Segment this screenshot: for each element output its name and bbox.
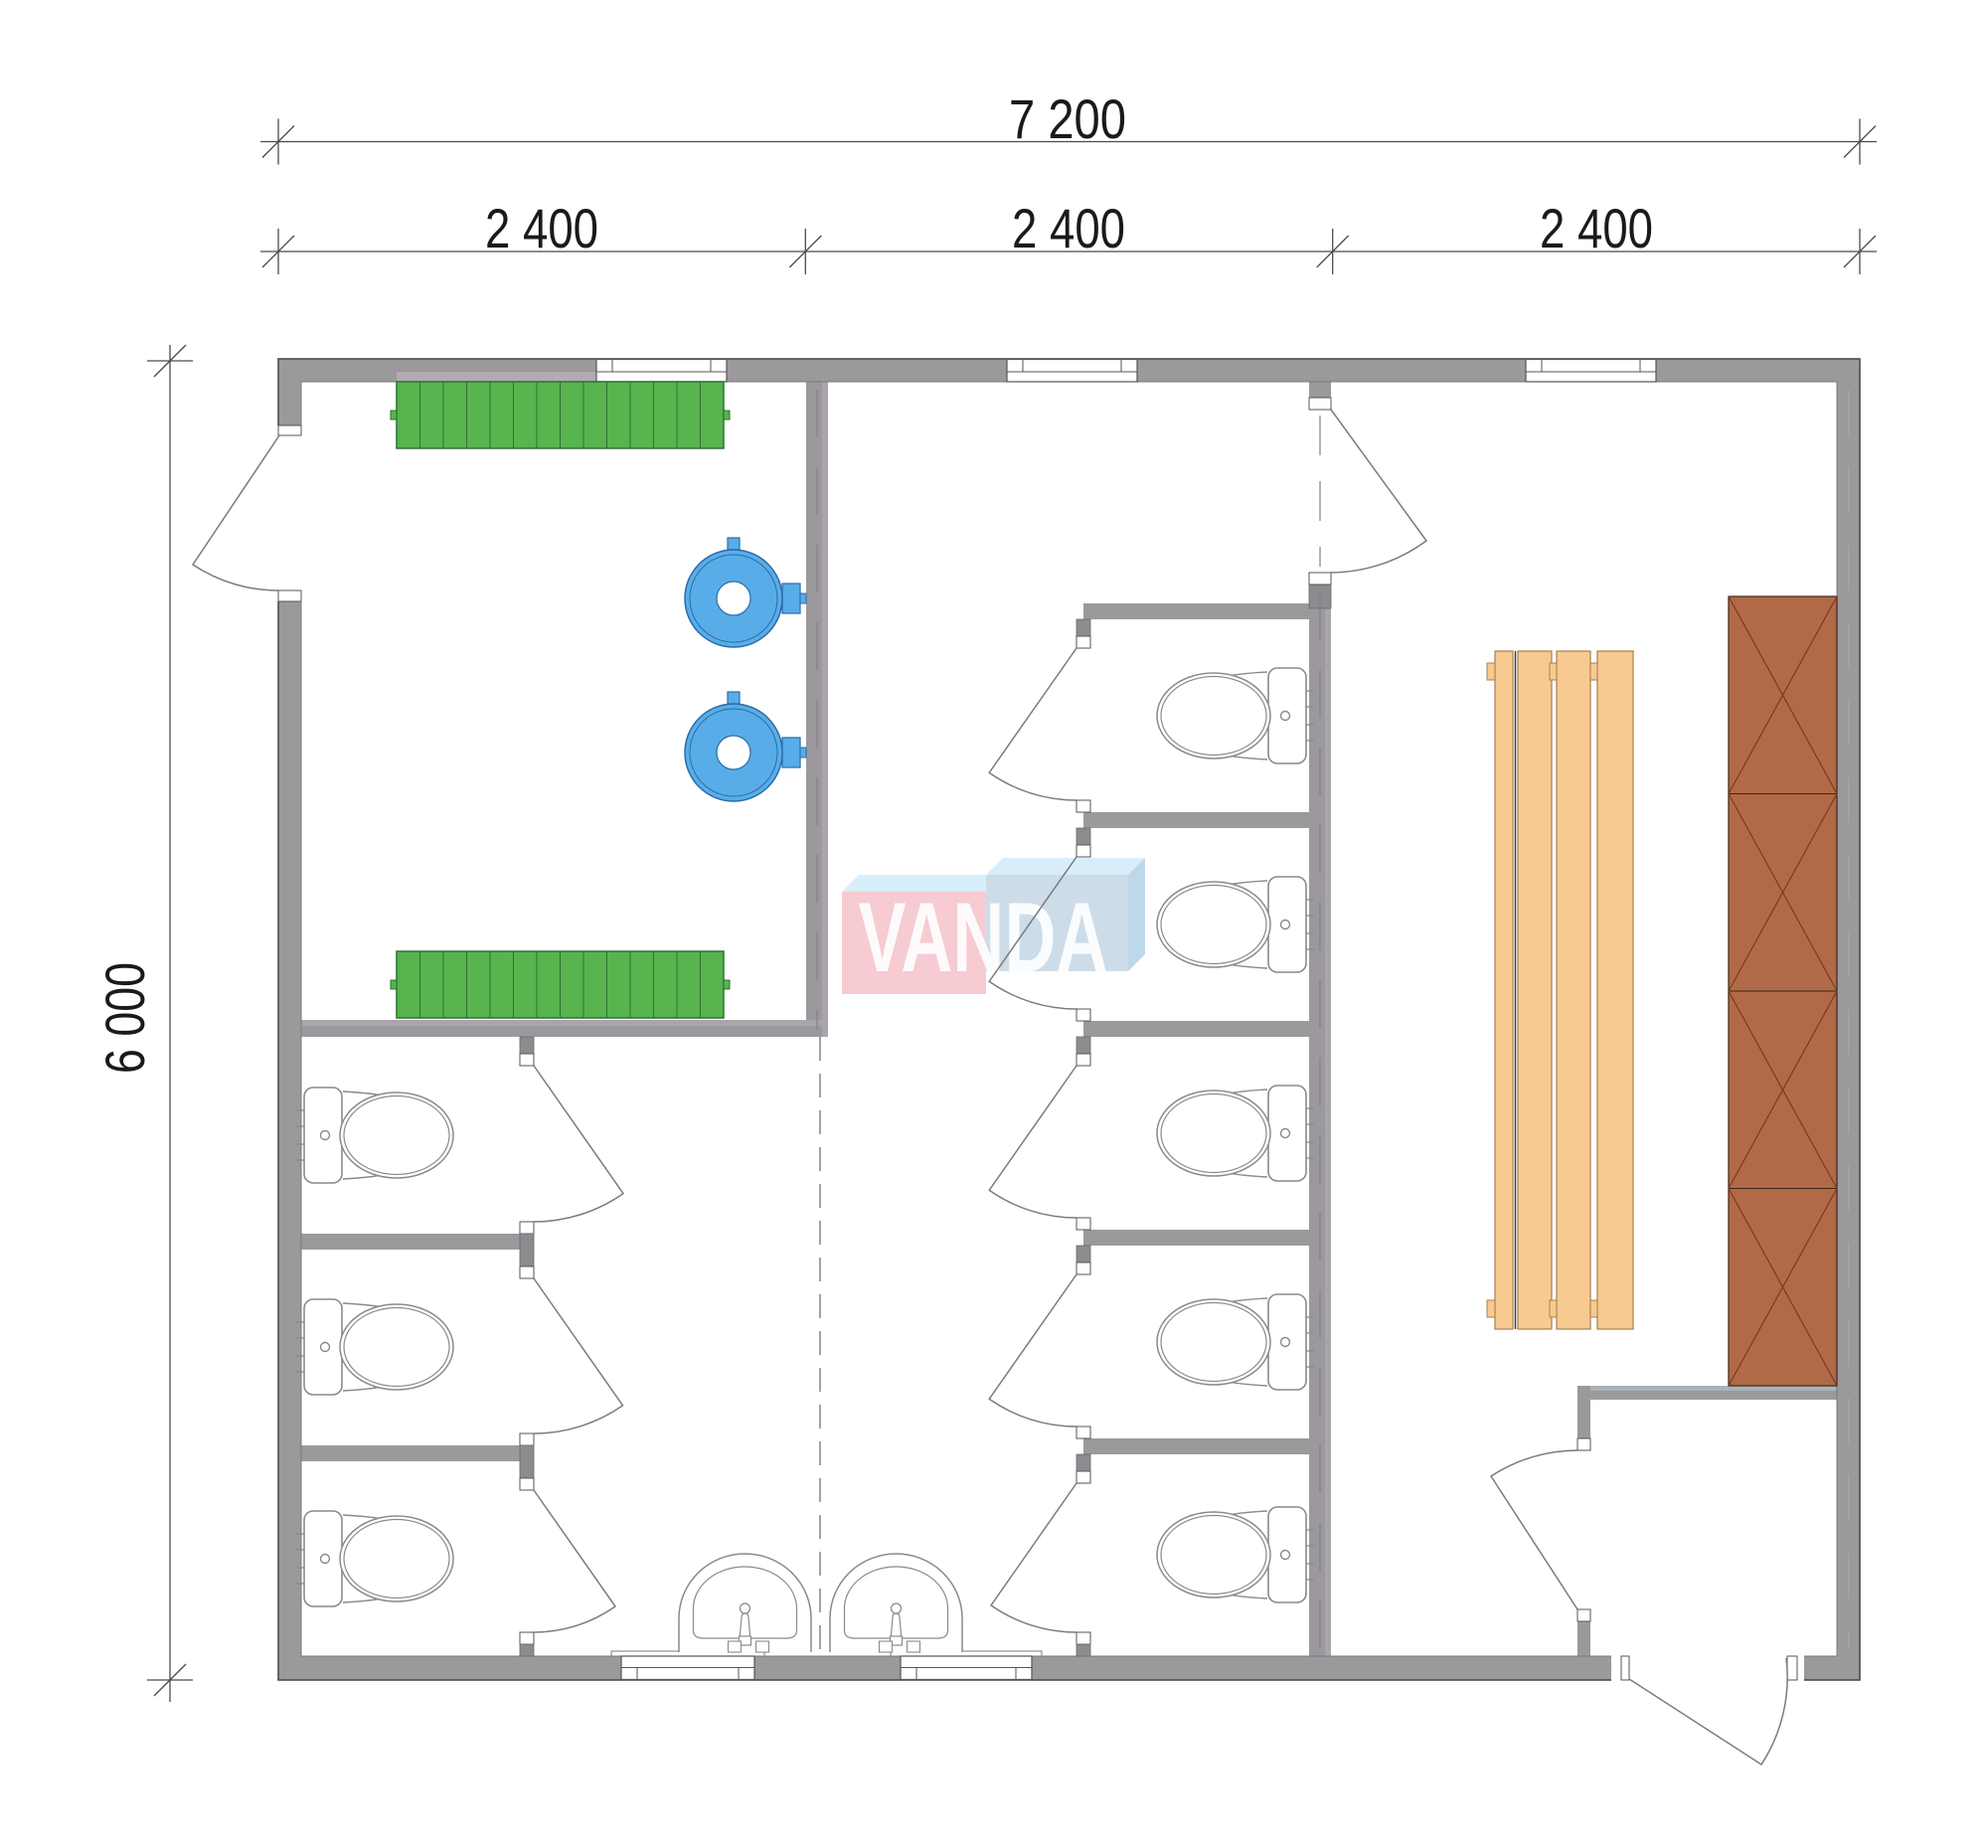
svg-text:2 400: 2 400 <box>1540 197 1653 259</box>
svg-text:7 200: 7 200 <box>1009 87 1126 150</box>
svg-text:2 400: 2 400 <box>1012 197 1125 259</box>
svg-text:VANDA: VANDA <box>859 882 1108 992</box>
svg-text:6 000: 6 000 <box>93 962 156 1074</box>
svg-text:2 400: 2 400 <box>485 197 598 259</box>
